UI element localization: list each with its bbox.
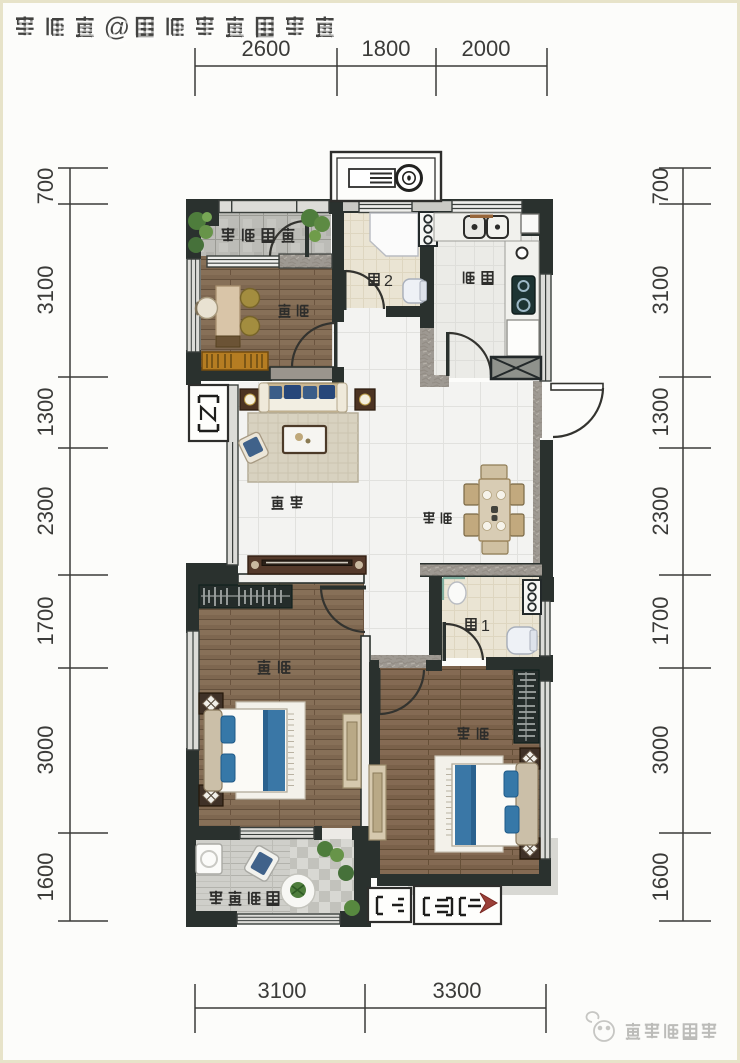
- svg-text:1: 1: [481, 618, 490, 635]
- svg-text:3100: 3100: [33, 266, 58, 315]
- svg-text:1700: 1700: [33, 597, 58, 646]
- svg-text:1600: 1600: [648, 853, 673, 902]
- svg-text:700: 700: [648, 168, 673, 205]
- svg-text:3100: 3100: [258, 978, 307, 1003]
- svg-text:1300: 1300: [648, 388, 673, 437]
- svg-text:1300: 1300: [33, 388, 58, 437]
- svg-text:1800: 1800: [362, 36, 411, 61]
- svg-text:@: @: [106, 14, 132, 44]
- svg-text:3000: 3000: [648, 726, 673, 775]
- svg-text:2000: 2000: [462, 36, 511, 61]
- svg-text:3000: 3000: [33, 726, 58, 775]
- svg-text:700: 700: [33, 168, 58, 205]
- svg-text:2300: 2300: [648, 487, 673, 536]
- svg-text:3300: 3300: [433, 978, 482, 1003]
- svg-text:3100: 3100: [648, 266, 673, 315]
- svg-text:1700: 1700: [648, 597, 673, 646]
- svg-text:1600: 1600: [33, 853, 58, 902]
- svg-text:2: 2: [384, 273, 393, 290]
- svg-text:2300: 2300: [33, 487, 58, 536]
